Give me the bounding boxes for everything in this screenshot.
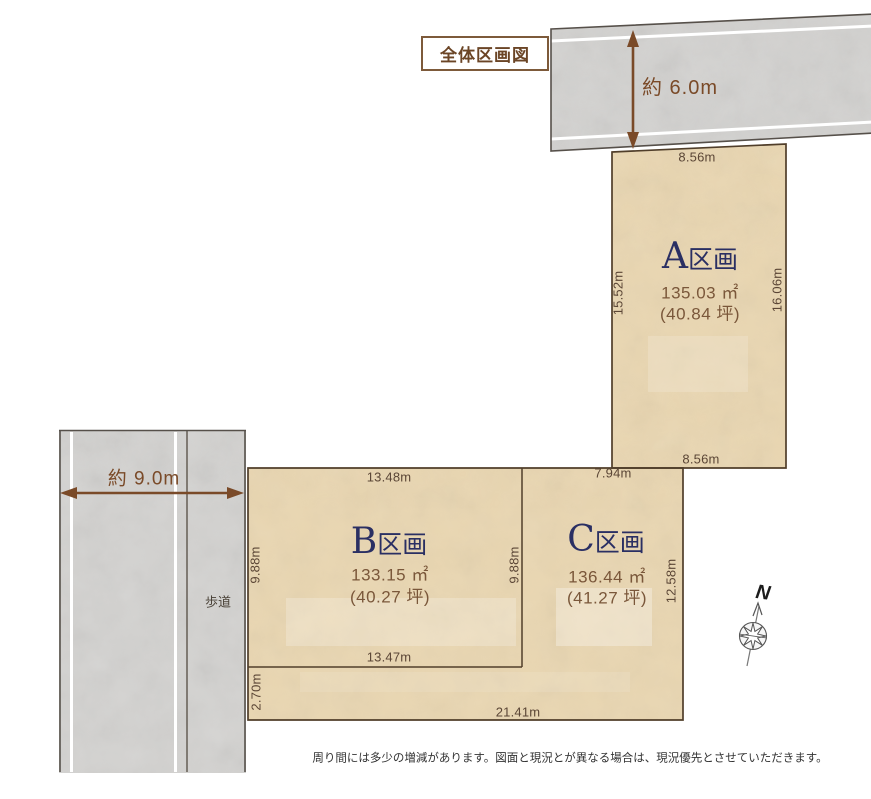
lot-b-dim-top: 13.48m [367,471,412,484]
plan-title-box: 全体区画図 [421,36,549,71]
lot-c-dim-top: 7.94m [594,467,631,480]
compass-n-label: N [754,582,771,604]
lot-a-ghost-footprint [648,336,748,392]
lot-a-name: A区画 [662,239,738,275]
lot-a-area-tsubo: (40.84 坪) [660,306,740,323]
lot-b-suffix: 区画 [377,530,427,559]
plan-title: 全体区画図 [440,41,530,66]
lot-b-dim-right: 9.88m [508,546,521,583]
plan-drawing [0,0,871,799]
lot-a-dim-bottom: 8.56m [682,453,719,466]
lot-a-area-m2: 135.03 ㎡ [661,285,739,302]
lot-c-suffix: 区画 [595,528,645,557]
lot-c-area-tsubo: (41.27 坪) [567,590,647,607]
lot-a-letter: A [662,236,688,277]
lot-b-dim-bottom: 13.47m [367,651,412,664]
left-road-width-label: 約 9.0m [108,470,181,489]
lot-c-dim-right: 12.58m [665,559,678,604]
sidewalk-label: 歩道 [205,596,231,609]
lot-c-area-m2: 136.44 ㎡ [568,569,646,586]
lot-c-letter: C [567,519,595,560]
lot-c-dim-strip-bottom: 21.41m [496,706,541,719]
lot-b-letter: B [351,521,377,562]
lot-a-dim-right: 16.06m [771,268,784,313]
lot-a-dim-top: 8.56m [678,151,715,164]
lot-bc-ghost-strip [300,672,630,692]
lot-b-name: B区画 [351,524,427,560]
lot-b-dim-left: 9.88m [249,546,262,583]
lot-a-dim-left: 15.52m [612,271,625,316]
lot-b-area-tsubo: (40.27 坪) [350,589,430,606]
lot-c-dim-strip-left: 2.70m [250,673,263,710]
disclaimer-text: 周り間には多少の増減があります。図面と現況とが異なる場合は、現況優先とさせていた… [312,753,827,765]
lot-c-name: C区画 [567,522,645,558]
compass [739,603,767,666]
plan-canvas: 全体区画図 約 6.0m 約 9.0m 歩道 8.56m A区画 135.03 … [0,0,871,799]
lot-a-suffix: 区画 [688,245,738,274]
top-road-width-label: 約 6.0m [642,78,718,98]
lot-b-area-m2: 133.15 ㎡ [351,567,429,584]
